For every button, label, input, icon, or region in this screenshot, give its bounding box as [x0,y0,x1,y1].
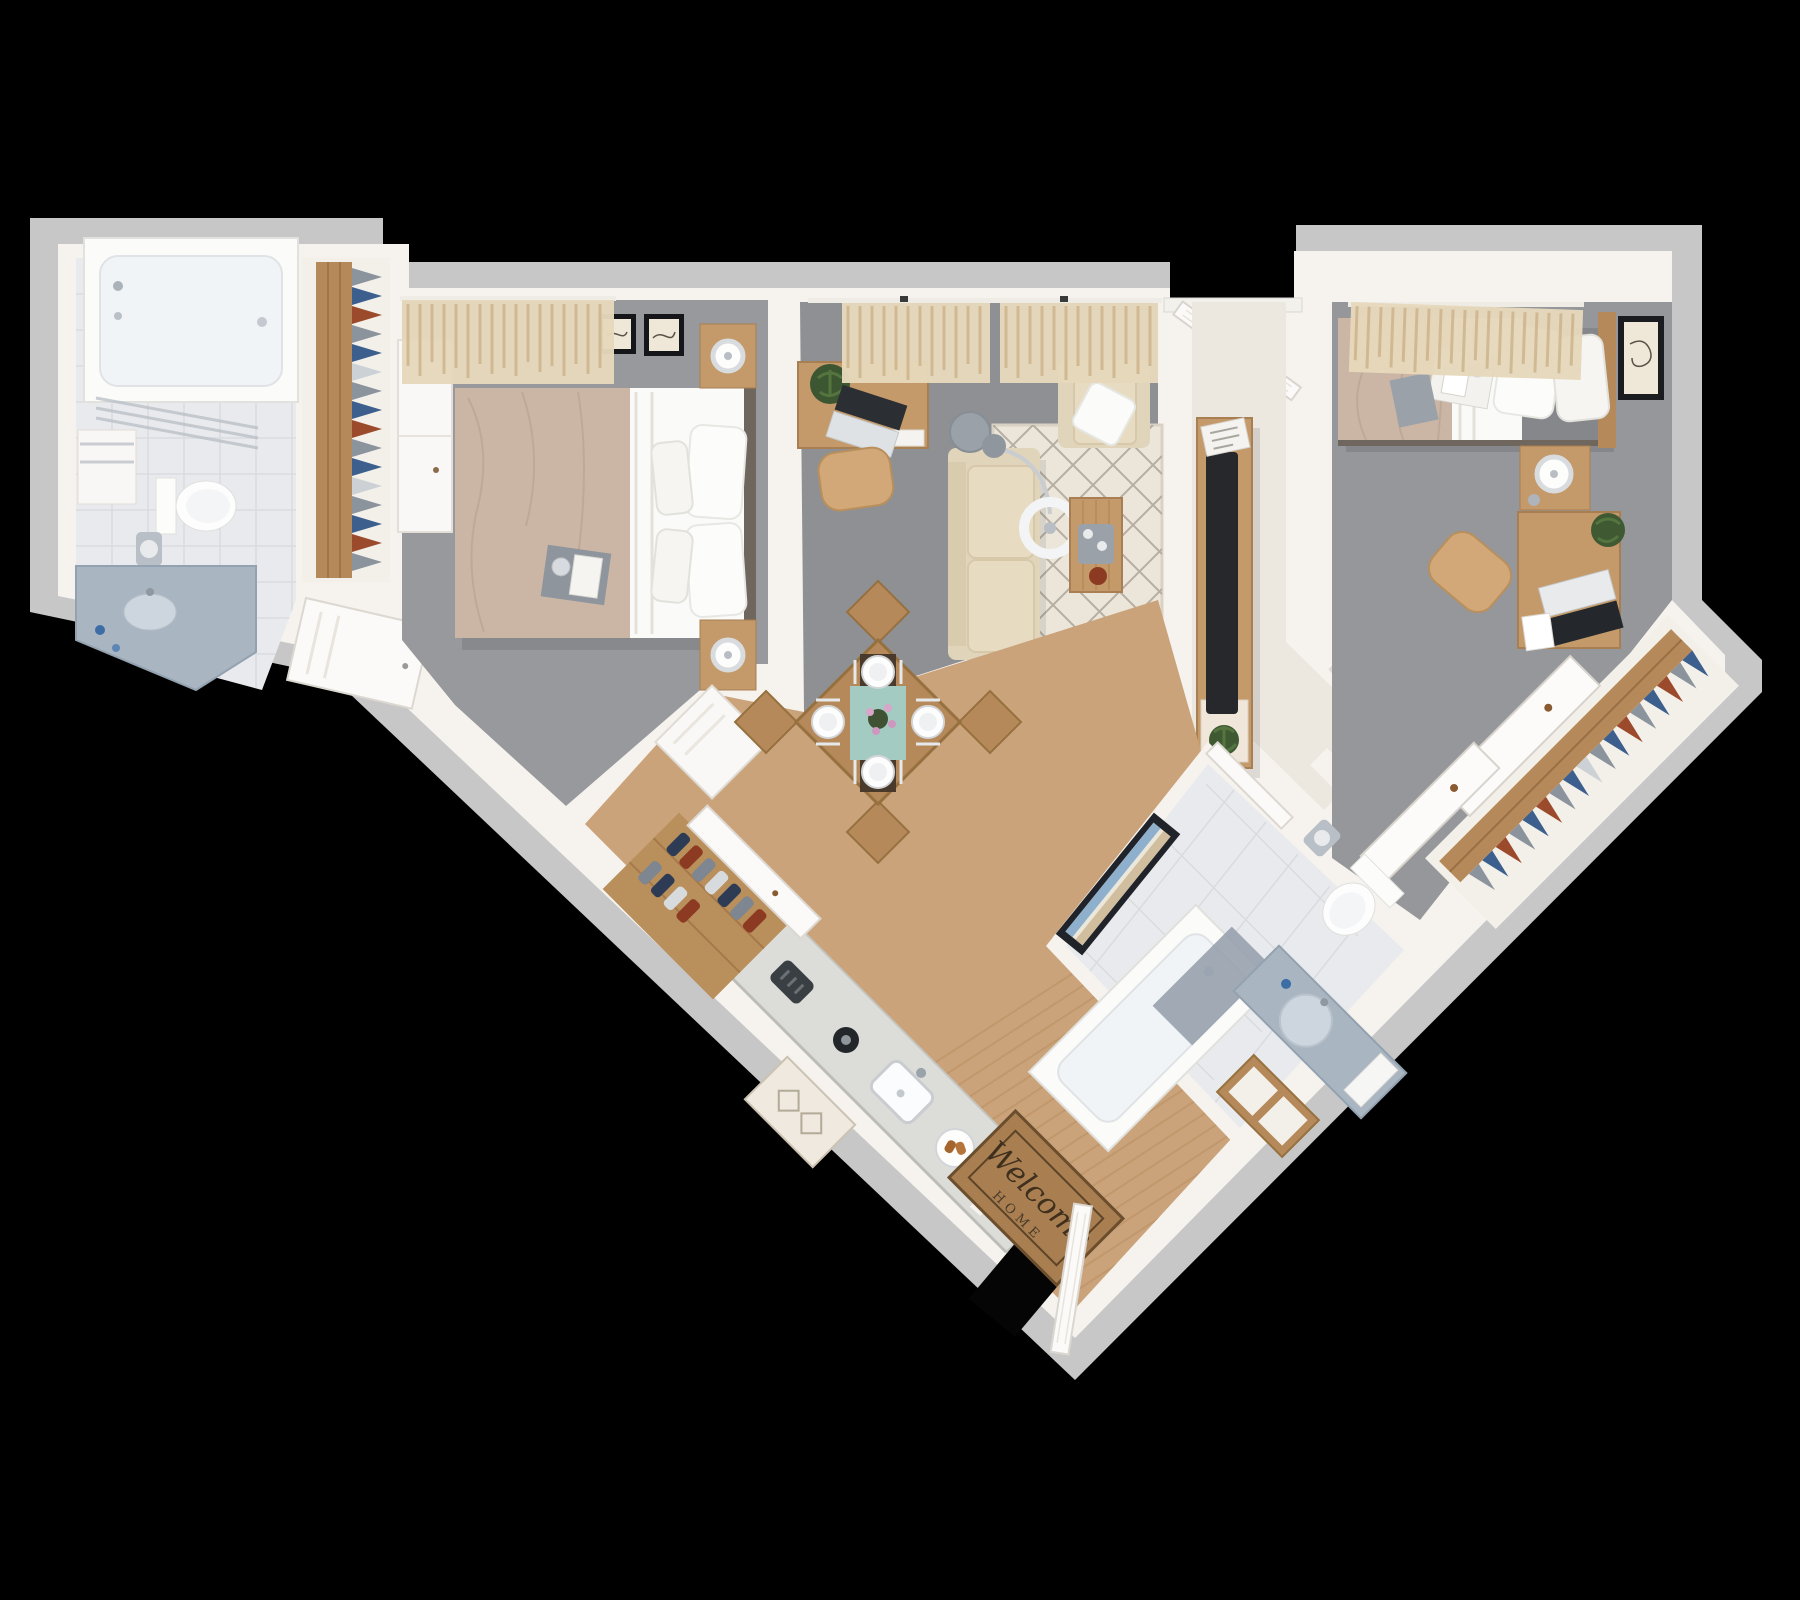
vanity-1-sink [124,594,176,630]
sofa-back [948,462,966,646]
towel-rack [78,430,136,504]
bed1-pillow-2 [685,522,747,618]
lamp-1b-bulb [724,651,732,659]
bed1-breakfast-tray [541,545,612,605]
chair-1-seat [816,445,895,512]
bathtub-1-basin [100,256,282,386]
lamp-2-bulb [1550,470,1558,478]
toilet-1 [156,478,236,534]
vanity-1-cup [95,625,105,635]
nightstand-2-cup [1528,494,1540,506]
coffee-table-tray [1078,524,1114,564]
tp-roll-1 [140,540,158,558]
plate-north-inner [869,663,887,681]
bed1-pillow-1 [685,424,747,520]
vanity-1-faucet [146,588,154,596]
plate-west-inner [819,713,837,731]
coffee-table-bowl [1089,567,1107,585]
bed1-pillow-3 [650,440,693,515]
floor-lamp-bulb [1044,522,1056,534]
vanity-1-cup-2 [112,644,120,652]
desk-chair-1 [816,445,895,512]
dresser-1-knob [433,467,439,473]
flower-4 [872,727,880,735]
plate-south-inner [869,763,887,781]
closet1-rod-shelf [316,262,352,578]
flower-3 [888,720,896,728]
tray-cup-2 [1097,541,1107,551]
bathtub-1-drain [257,317,267,327]
plate-east-inner [919,713,937,731]
toilet-1-seat [186,489,230,523]
flower-1 [866,708,874,716]
floor-lamp-base [982,434,1006,458]
bed1-pillow-4 [650,528,693,603]
patio-door-opening [1170,190,1294,302]
bed2-frame-edge [1338,440,1602,446]
coffee-maker-lid [841,1035,851,1045]
flower-2 [884,704,892,712]
walk-in-closet-1 [302,258,390,582]
desk-2-paper [1522,613,1554,651]
floor-plan-rendering: WelcomeHOME [0,0,1800,1600]
television [1206,452,1238,714]
sofa-cushion-2 [968,560,1034,652]
floor-plan-stage: WelcomeHOME [0,0,1800,1600]
tray-cup-1 [1083,529,1093,539]
art-frame-2-inner [1624,322,1658,394]
bedroom1-curtain [402,300,614,384]
toilet-1-tank [156,478,176,534]
lamp-1a-bulb [724,352,732,360]
tray-book [569,555,602,599]
bathtub-1-faucet [113,281,123,291]
rod-tick-1 [900,296,908,302]
bathtub-1-handle [114,312,122,320]
rod-tick-2 [1060,296,1068,302]
living-curtain-rod [808,298,1162,303]
